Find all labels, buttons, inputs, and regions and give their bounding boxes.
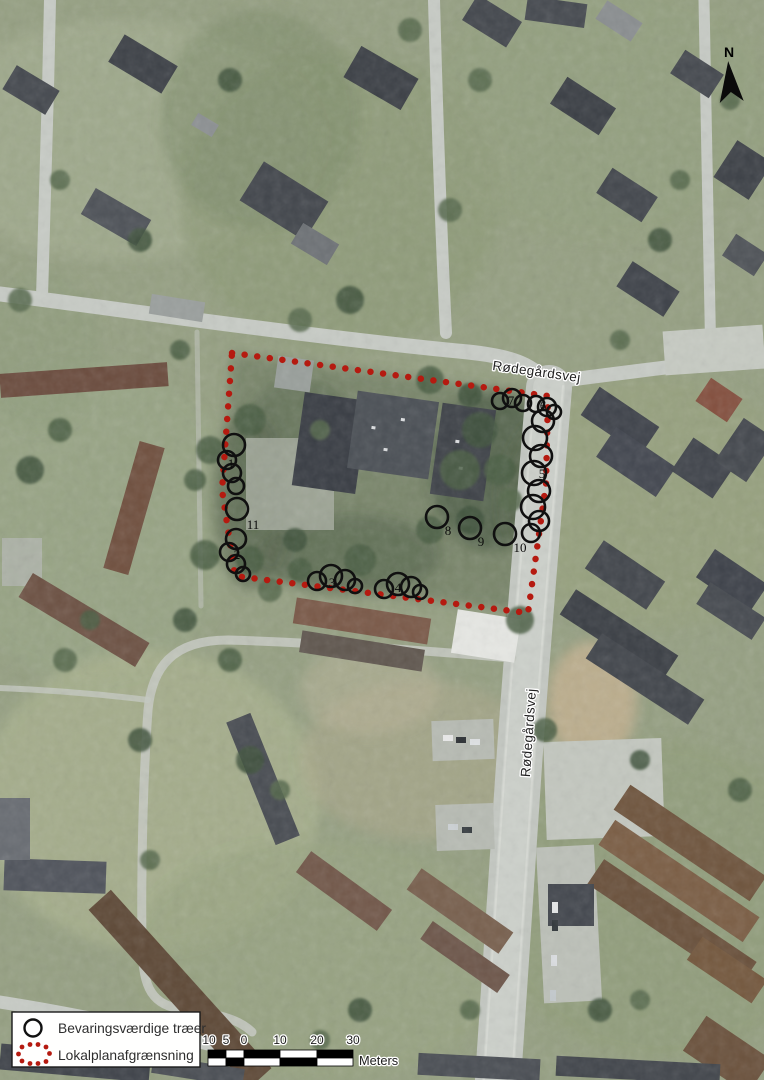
- tree-label-6: 6: [540, 398, 547, 413]
- legend-item-bevaringsvaerdige-traeer: Bevaringsværdige træer: [58, 1021, 206, 1036]
- north-arrow-label: N: [724, 44, 734, 60]
- tree-label-7: 7: [508, 393, 515, 408]
- scale-tick-0: 0: [241, 1033, 248, 1047]
- tree-label-3: 3: [329, 575, 336, 590]
- tree-label-2: 2: [234, 547, 241, 562]
- aerial-map: 1 2 3 4 5 6 7 8 9 10 11 Rødegårdsvej Rød…: [0, 0, 764, 1080]
- tree-label-11: 11: [247, 517, 260, 532]
- tree-label-10: 10: [514, 540, 527, 555]
- legend: Bevaringsværdige træer Lokalplanafgrænsn…: [12, 1012, 206, 1067]
- tree-label-9: 9: [478, 534, 485, 549]
- tree-label-8: 8: [445, 523, 452, 538]
- aerial-background: [0, 0, 764, 1080]
- map-figure: 1 2 3 4 5 6 7 8 9 10 11 Rødegårdsvej Rød…: [0, 0, 764, 1080]
- scale-tick-20: 20: [310, 1033, 324, 1047]
- scale-unit-label: Meters: [359, 1053, 398, 1068]
- tree-label-4: 4: [395, 580, 402, 595]
- photo-grain: [0, 0, 764, 1080]
- scale-tick-10r: 10: [273, 1033, 287, 1047]
- tree-label-5: 5: [539, 466, 546, 481]
- scale-tick-30: 30: [346, 1033, 360, 1047]
- tree-label-1: 1: [228, 456, 235, 471]
- legend-item-lokalplanafgraensning: Lokalplanafgrænsning: [58, 1048, 194, 1063]
- scale-tick-5: 5: [223, 1033, 230, 1047]
